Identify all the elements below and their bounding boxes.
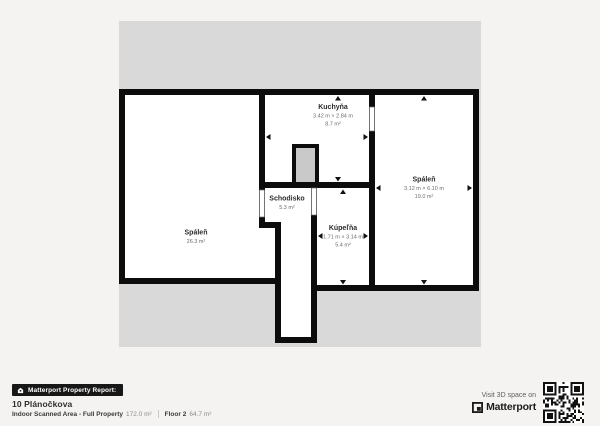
door-kitchen-bedroom	[370, 107, 375, 131]
scanned-area-label: Indoor Scanned Area - Full Property	[12, 411, 123, 418]
floorplan: Kuchyňa 3.42 m × 2.84 m 8.7 m² Spáleň 3.…	[0, 0, 600, 426]
chimney-shaft	[292, 144, 319, 186]
floor-value: 64.7 m²	[189, 411, 211, 418]
room-dims-kitchen: 3.42 m × 2.84 m	[313, 114, 353, 120]
room-label-bedroom-left: Spáleň	[185, 230, 208, 237]
page-background: Kuchyňa 3.42 m × 2.84 m 8.7 m² Spáleň 3.…	[0, 0, 600, 426]
matterport-house-icon	[17, 387, 24, 394]
room-label-staircase: Schodisko	[269, 196, 304, 203]
room-label-bathroom: Kúpeľňa	[329, 225, 357, 232]
room-label-bedroom-right: Spáleň	[413, 177, 436, 184]
room-label-kitchen: Kuchyňa	[318, 104, 348, 111]
matterport-wordmark: Matterport	[486, 401, 536, 413]
scanned-area-value: 172.0 m²	[126, 411, 152, 418]
qr-code	[543, 382, 584, 423]
room-dims-bathroom: 1.71 m × 3.14 m	[323, 235, 363, 241]
room-area-staircase: 5.3 m²	[279, 205, 295, 211]
room-area-bedroom-left: 26.3 m²	[187, 239, 206, 245]
door-staircase-bathroom	[312, 188, 317, 215]
door-bedroom-staircase	[260, 190, 265, 217]
property-address: 10 Plánočkova	[12, 399, 72, 409]
matterport-logo-icon	[472, 402, 483, 413]
report-bar-label: Matterport Property Report:	[28, 387, 116, 394]
visit-text: Visit 3D space on	[482, 392, 536, 399]
visit-3d-cta[interactable]: Visit 3D space on Matterport	[472, 382, 584, 423]
property-meta: Indoor Scanned Area - Full Property 172.…	[12, 410, 211, 418]
room-dims-bedroom-right: 3.12 m × 6.10 m	[404, 186, 444, 192]
room-area-bedroom-right: 19.0 m²	[415, 194, 434, 200]
meta-divider	[158, 410, 159, 418]
room-area-kitchen: 8.7 m²	[325, 122, 341, 128]
floor-label: Floor 2	[165, 411, 187, 418]
room-area-bathroom: 5.4 m²	[335, 243, 351, 249]
report-bar: Matterport Property Report:	[12, 384, 123, 396]
